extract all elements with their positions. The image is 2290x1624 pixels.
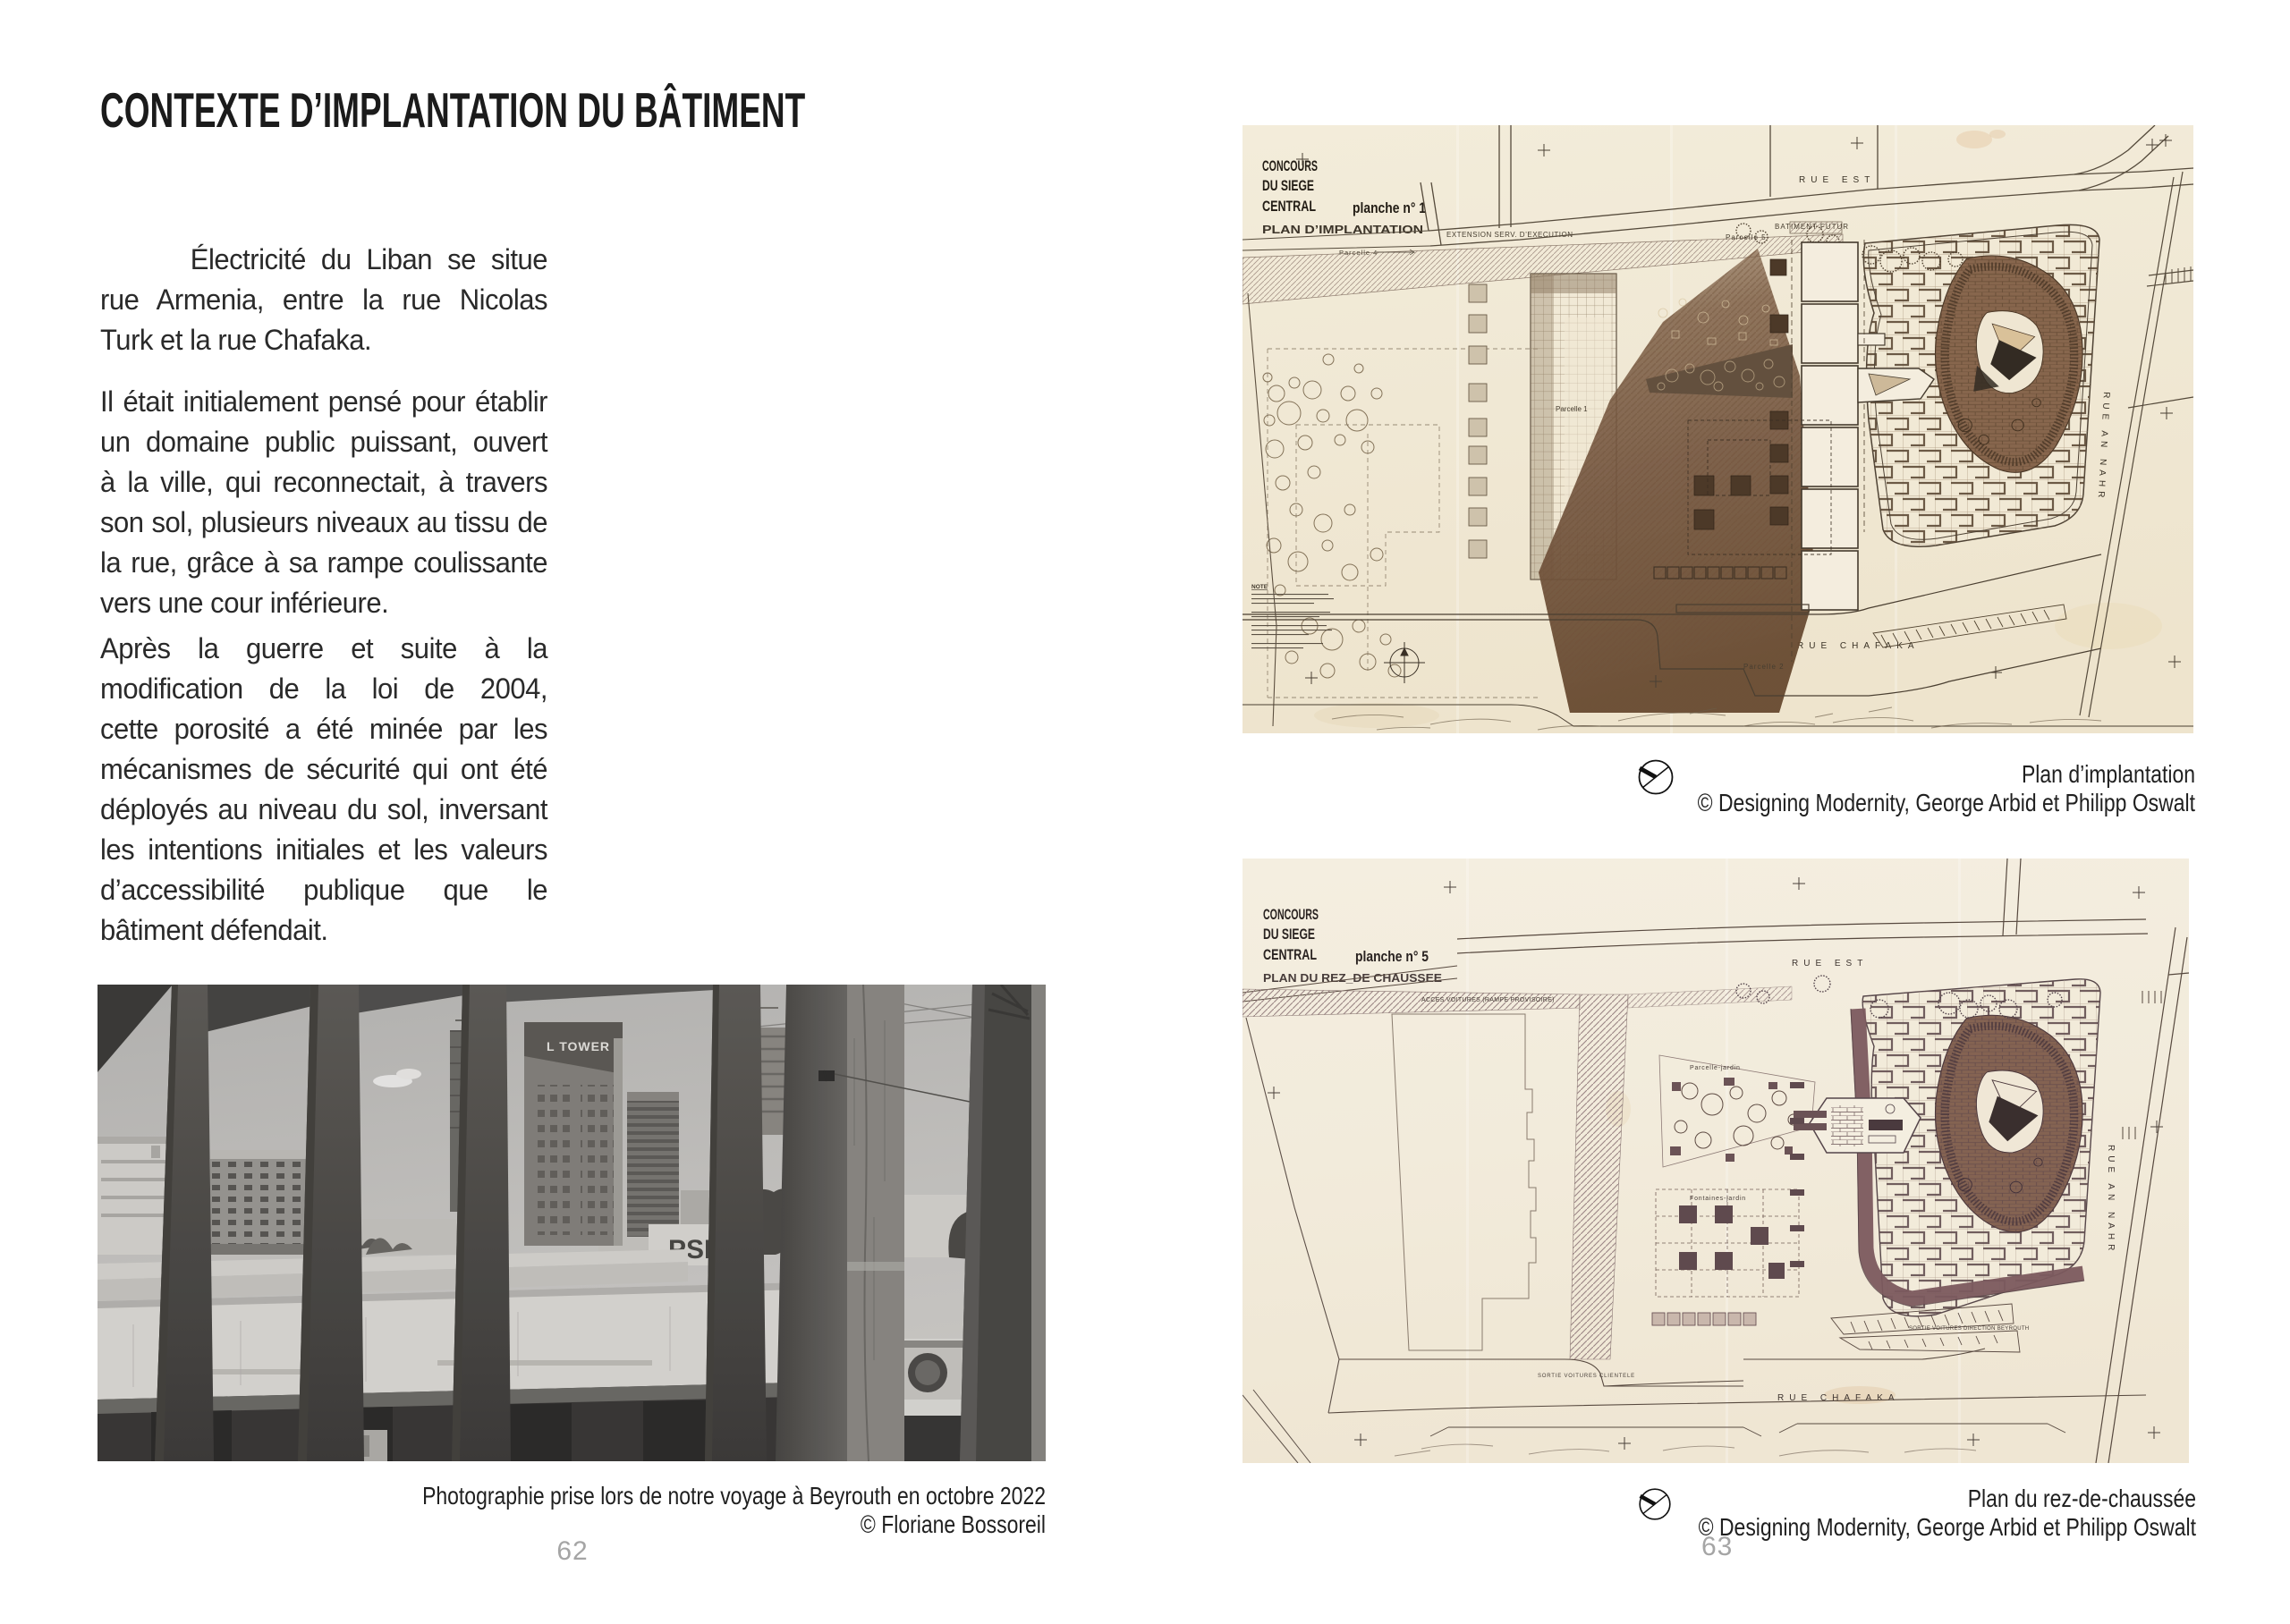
svg-text:SORTIE VOITURES DIRECTION BEYR: SORTIE VOITURES DIRECTION BEYROUTH [1909, 1326, 2029, 1332]
svg-text:Parcelle 1: Parcelle 1 [1556, 405, 1588, 413]
svg-text:CENTRAL: CENTRAL [1263, 946, 1317, 963]
svg-text:Parcelle 2: Parcelle 2 [1743, 663, 1785, 671]
svg-text:Parcelle-jardin: Parcelle-jardin [1690, 1065, 1741, 1071]
svg-text:CONCOURS: CONCOURS [1263, 906, 1319, 923]
svg-text:NOTE: NOTE [1251, 584, 1268, 590]
svg-text:PLAN D’IMPLANTATION: PLAN D’IMPLANTATION [1262, 224, 1423, 236]
svg-text:DU SIEGE: DU SIEGE [1263, 926, 1315, 943]
svg-text:BATIMENT FUTUR: BATIMENT FUTUR [1775, 223, 1849, 231]
svg-text:RUE CHAFAKA: RUE CHAFAKA [1797, 641, 1920, 651]
svg-text:DU SIEGE: DU SIEGE [1262, 177, 1314, 194]
svg-text:SORTIE VOITURES CLIENTELE: SORTIE VOITURES CLIENTELE [1538, 1374, 1635, 1379]
svg-text:Parcelle 5: Parcelle 5 [1726, 233, 1767, 241]
svg-text:RUE AN NAHR: RUE AN NAHR [2106, 1145, 2116, 1255]
svg-text:ACCES VOITURES (RAMPE PROVISOI: ACCES VOITURES (RAMPE PROVISOIRE) [1421, 997, 1555, 1003]
svg-text:planche n° 5: planche n° 5 [1355, 948, 1429, 965]
svg-text:Fontaines-jardin: Fontaines-jardin [1690, 1196, 1746, 1202]
svg-text:planche n° 1: planche n° 1 [1353, 199, 1426, 216]
svg-text:Parcelle 4: Parcelle 4 [1339, 249, 1378, 257]
svg-text:CONCOURS: CONCOURS [1262, 157, 1318, 174]
svg-text:RUE EST: RUE EST [1799, 175, 1875, 185]
svg-text:CENTRAL: CENTRAL [1262, 198, 1316, 215]
svg-text:RUE EST: RUE EST [1792, 959, 1868, 968]
svg-text:EXTENSION SERV. D’EXECUTION: EXTENSION SERV. D’EXECUTION [1446, 231, 1573, 239]
